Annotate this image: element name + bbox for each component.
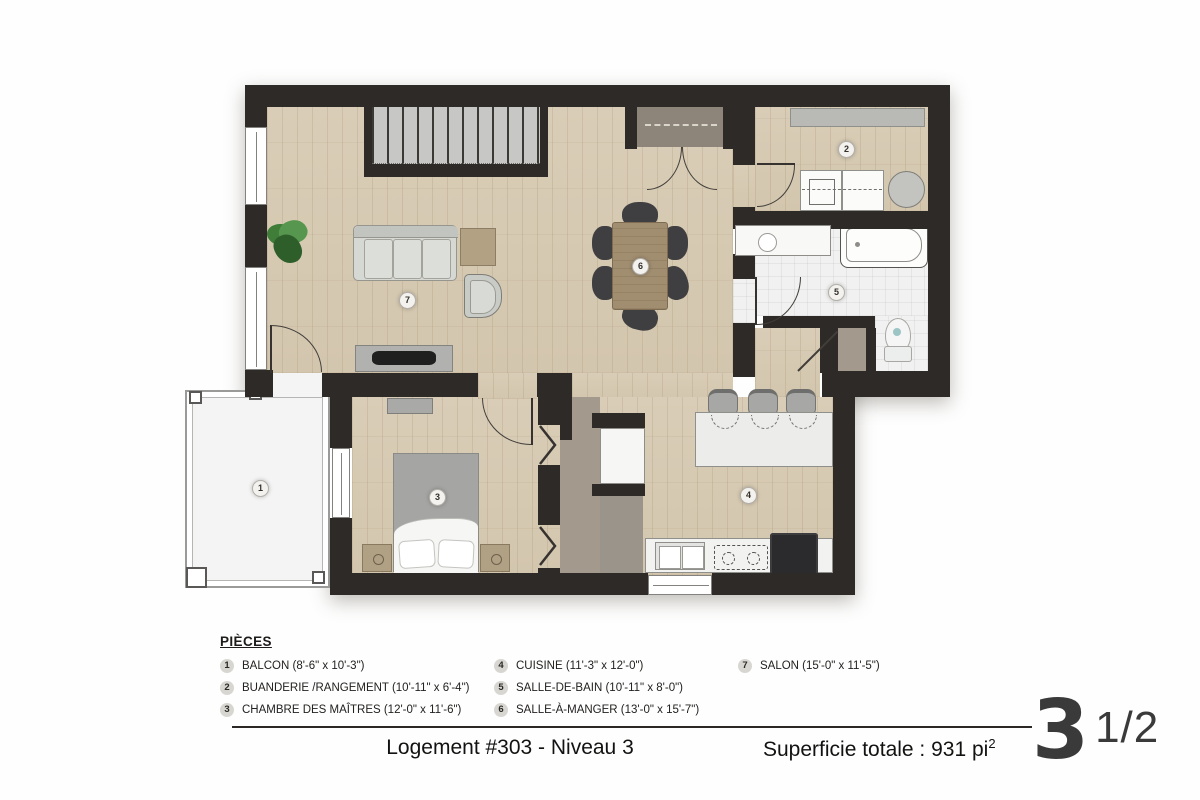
window: [245, 127, 267, 205]
sofa-cushion: [393, 239, 422, 279]
room-badge-buanderie: 2: [838, 141, 855, 158]
bed: [393, 453, 479, 572]
total-area: Superficie totale : 931 pi2: [763, 736, 996, 762]
legend-item: 5 SALLE-DE-BAIN (10'-11" x 8'-0"): [494, 680, 699, 696]
side-table: [460, 228, 496, 266]
staircase-treads: [372, 107, 540, 164]
legend-column-2: 4 CUISINE (11'-3" x 12'-0") 5 SALLE-DE-B…: [494, 658, 699, 718]
laundry-basket: [888, 171, 925, 208]
sofa-cushion: [422, 239, 451, 279]
dryer: [842, 170, 884, 211]
legend-label: BALCON (8'-6" x 10'-3"): [242, 660, 364, 672]
appliance-dashed-line: [802, 189, 882, 190]
legend-item: 6 SALLE-À-MANGER (13'-0" x 15'-7"): [494, 702, 699, 718]
toilet-flush: [893, 328, 901, 336]
bifold-closet-door: [537, 524, 560, 568]
unit-type-number: 3: [1032, 692, 1089, 770]
legend-label: CHAMBRE DES MAÎTRES (12'-0" x 11'-6"): [242, 704, 461, 716]
legend-badge: 7: [738, 659, 752, 673]
wall-segment: [625, 107, 637, 149]
tv-console: [355, 345, 453, 372]
total-area-text: Superficie totale : 931 pi: [763, 738, 988, 761]
vanity-sink: [758, 233, 777, 252]
tv-screen: [372, 351, 436, 365]
kitchen-sink: [655, 542, 705, 570]
sofa: [353, 225, 457, 281]
wall-segment: [928, 85, 950, 377]
legend-item: 4 CUISINE (11'-3" x 12'-0"): [494, 658, 699, 674]
wall-segment: [538, 568, 560, 595]
stool-place-arc: [789, 415, 817, 429]
legend-item: 2 BUANDERIE /RANGEMENT (10'-11" x 6'-4"): [220, 680, 469, 696]
plant: [265, 218, 309, 264]
bedroom-door-leaf: [531, 398, 533, 445]
staircase-frame: [364, 164, 548, 177]
stove-burner: [722, 552, 735, 565]
entry-closet-rod: [645, 124, 717, 126]
window: [245, 267, 267, 370]
sink-basin: [682, 546, 704, 569]
stove-burner: [747, 552, 760, 565]
legend-label: SALON (15'-0" x 11'-5"): [760, 660, 880, 672]
wall-segment: [733, 254, 755, 279]
wall-segment: [538, 397, 560, 425]
stool-place-arc: [711, 415, 739, 429]
nightstand-knob: [491, 554, 502, 565]
footer-rule: [232, 726, 1032, 728]
window: [648, 575, 712, 595]
room-badge-balcon: 1: [252, 480, 269, 497]
floor-balcony-door-threshold: [271, 373, 322, 397]
floor-bedroom-door-threshold: [478, 373, 537, 399]
washer: [800, 170, 842, 211]
kitchen-island: [695, 412, 833, 467]
bathroom-vanity: [735, 225, 831, 256]
legend-badge: 6: [494, 703, 508, 717]
room-badge-chambre: 3: [429, 489, 446, 506]
legend-badge: 2: [220, 681, 234, 695]
room-badge-salle-a-manger: 6: [632, 258, 649, 275]
unit-title: Logement #303 - Niveau 3: [330, 736, 690, 760]
wall-segment: [592, 413, 645, 428]
wall-segment: [733, 107, 755, 165]
nightstand: [480, 544, 510, 572]
floorplan-sheet: 1 2 3 4 5 6 7 PIÈCES 1 BALCON (8'-6" x 1…: [0, 0, 1200, 800]
utility-closet-interior: [600, 496, 643, 573]
sofa-back: [354, 226, 458, 238]
unit-type-fraction: 1/2: [1095, 706, 1159, 750]
toilet: [884, 318, 910, 364]
sink-basin: [659, 546, 681, 569]
legend-item: 1 BALCON (8'-6" x 10'-3"): [220, 658, 469, 674]
legend-column-1: 1 BALCON (8'-6" x 10'-3") 2 BUANDERIE /R…: [220, 658, 469, 718]
room-badge-salon: 7: [399, 292, 416, 309]
bathtub-drain: [855, 242, 860, 247]
legend-heading: PIÈCES: [220, 634, 272, 649]
wall-segment: [245, 370, 273, 397]
wall-segment: [733, 207, 755, 227]
wall-segment: [866, 328, 876, 373]
wall-segment: [733, 323, 755, 377]
wall-segment: [592, 484, 645, 496]
legend-column-3: 7 SALON (15'-0" x 11'-5"): [738, 658, 880, 674]
toilet-tank: [884, 346, 912, 362]
balcony-post: [186, 567, 207, 588]
window: [332, 448, 350, 518]
total-area-exponent: 2: [988, 736, 995, 751]
legend-badge: 1: [220, 659, 234, 673]
lounge-chair-seat: [470, 280, 496, 314]
wall-segment: [538, 465, 560, 525]
legend-badge: 4: [494, 659, 508, 673]
entry-closet-interior: [637, 107, 723, 147]
legend-badge: 3: [220, 703, 234, 717]
wall-segment: [330, 381, 352, 448]
wall-segment: [560, 373, 572, 440]
wall-segment: [833, 371, 855, 595]
wall-segment: [245, 85, 950, 107]
legend-item: 7 SALON (15'-0" x 11'-5"): [738, 658, 880, 674]
kitchen-appliance: [770, 533, 818, 575]
nightstand-knob: [373, 554, 384, 565]
bifold-closet-door: [537, 423, 560, 467]
wall-segment: [245, 205, 267, 267]
laundry-shelf: [790, 108, 925, 127]
sofa-cushion: [364, 239, 393, 279]
floor-laundry-door-threshold: [733, 165, 755, 209]
balcony-post: [189, 391, 202, 404]
wall-segment: [330, 573, 648, 595]
floor-bath-door-threshold: [733, 279, 755, 323]
legend-label: SALLE-DE-BAIN (10'-11" x 8'-0"): [516, 682, 683, 694]
legend-label: SALLE-À-MANGER (13'-0" x 15'-7"): [516, 704, 699, 716]
room-badge-cuisine: 4: [740, 487, 757, 504]
legend-item: 3 CHAMBRE DES MAÎTRES (12'-0" x 11'-6"): [220, 702, 469, 718]
stool-place-arc: [751, 415, 779, 429]
bed-pillow: [398, 539, 436, 569]
bed-pillow: [437, 539, 474, 569]
balcony-post: [312, 571, 325, 584]
dresser: [387, 398, 433, 414]
nightstand: [362, 544, 392, 572]
lounge-chair: [464, 274, 502, 318]
stove-cooktop: [714, 545, 768, 570]
washer-drum: [809, 179, 835, 205]
pantry-cabinet: [600, 428, 645, 484]
wall-segment: [245, 85, 267, 127]
floor-hall-nook: [755, 328, 820, 397]
legend-label: CUISINE (11'-3" x 12'-0"): [516, 660, 643, 672]
room-badge-salle-de-bain: 5: [828, 284, 845, 301]
wall-segment: [723, 107, 735, 149]
legend-badge: 5: [494, 681, 508, 695]
unit-type: 3 1/2: [1032, 692, 1159, 770]
legend-label: BUANDERIE /RANGEMENT (10'-11" x 6'-4"): [242, 682, 469, 694]
